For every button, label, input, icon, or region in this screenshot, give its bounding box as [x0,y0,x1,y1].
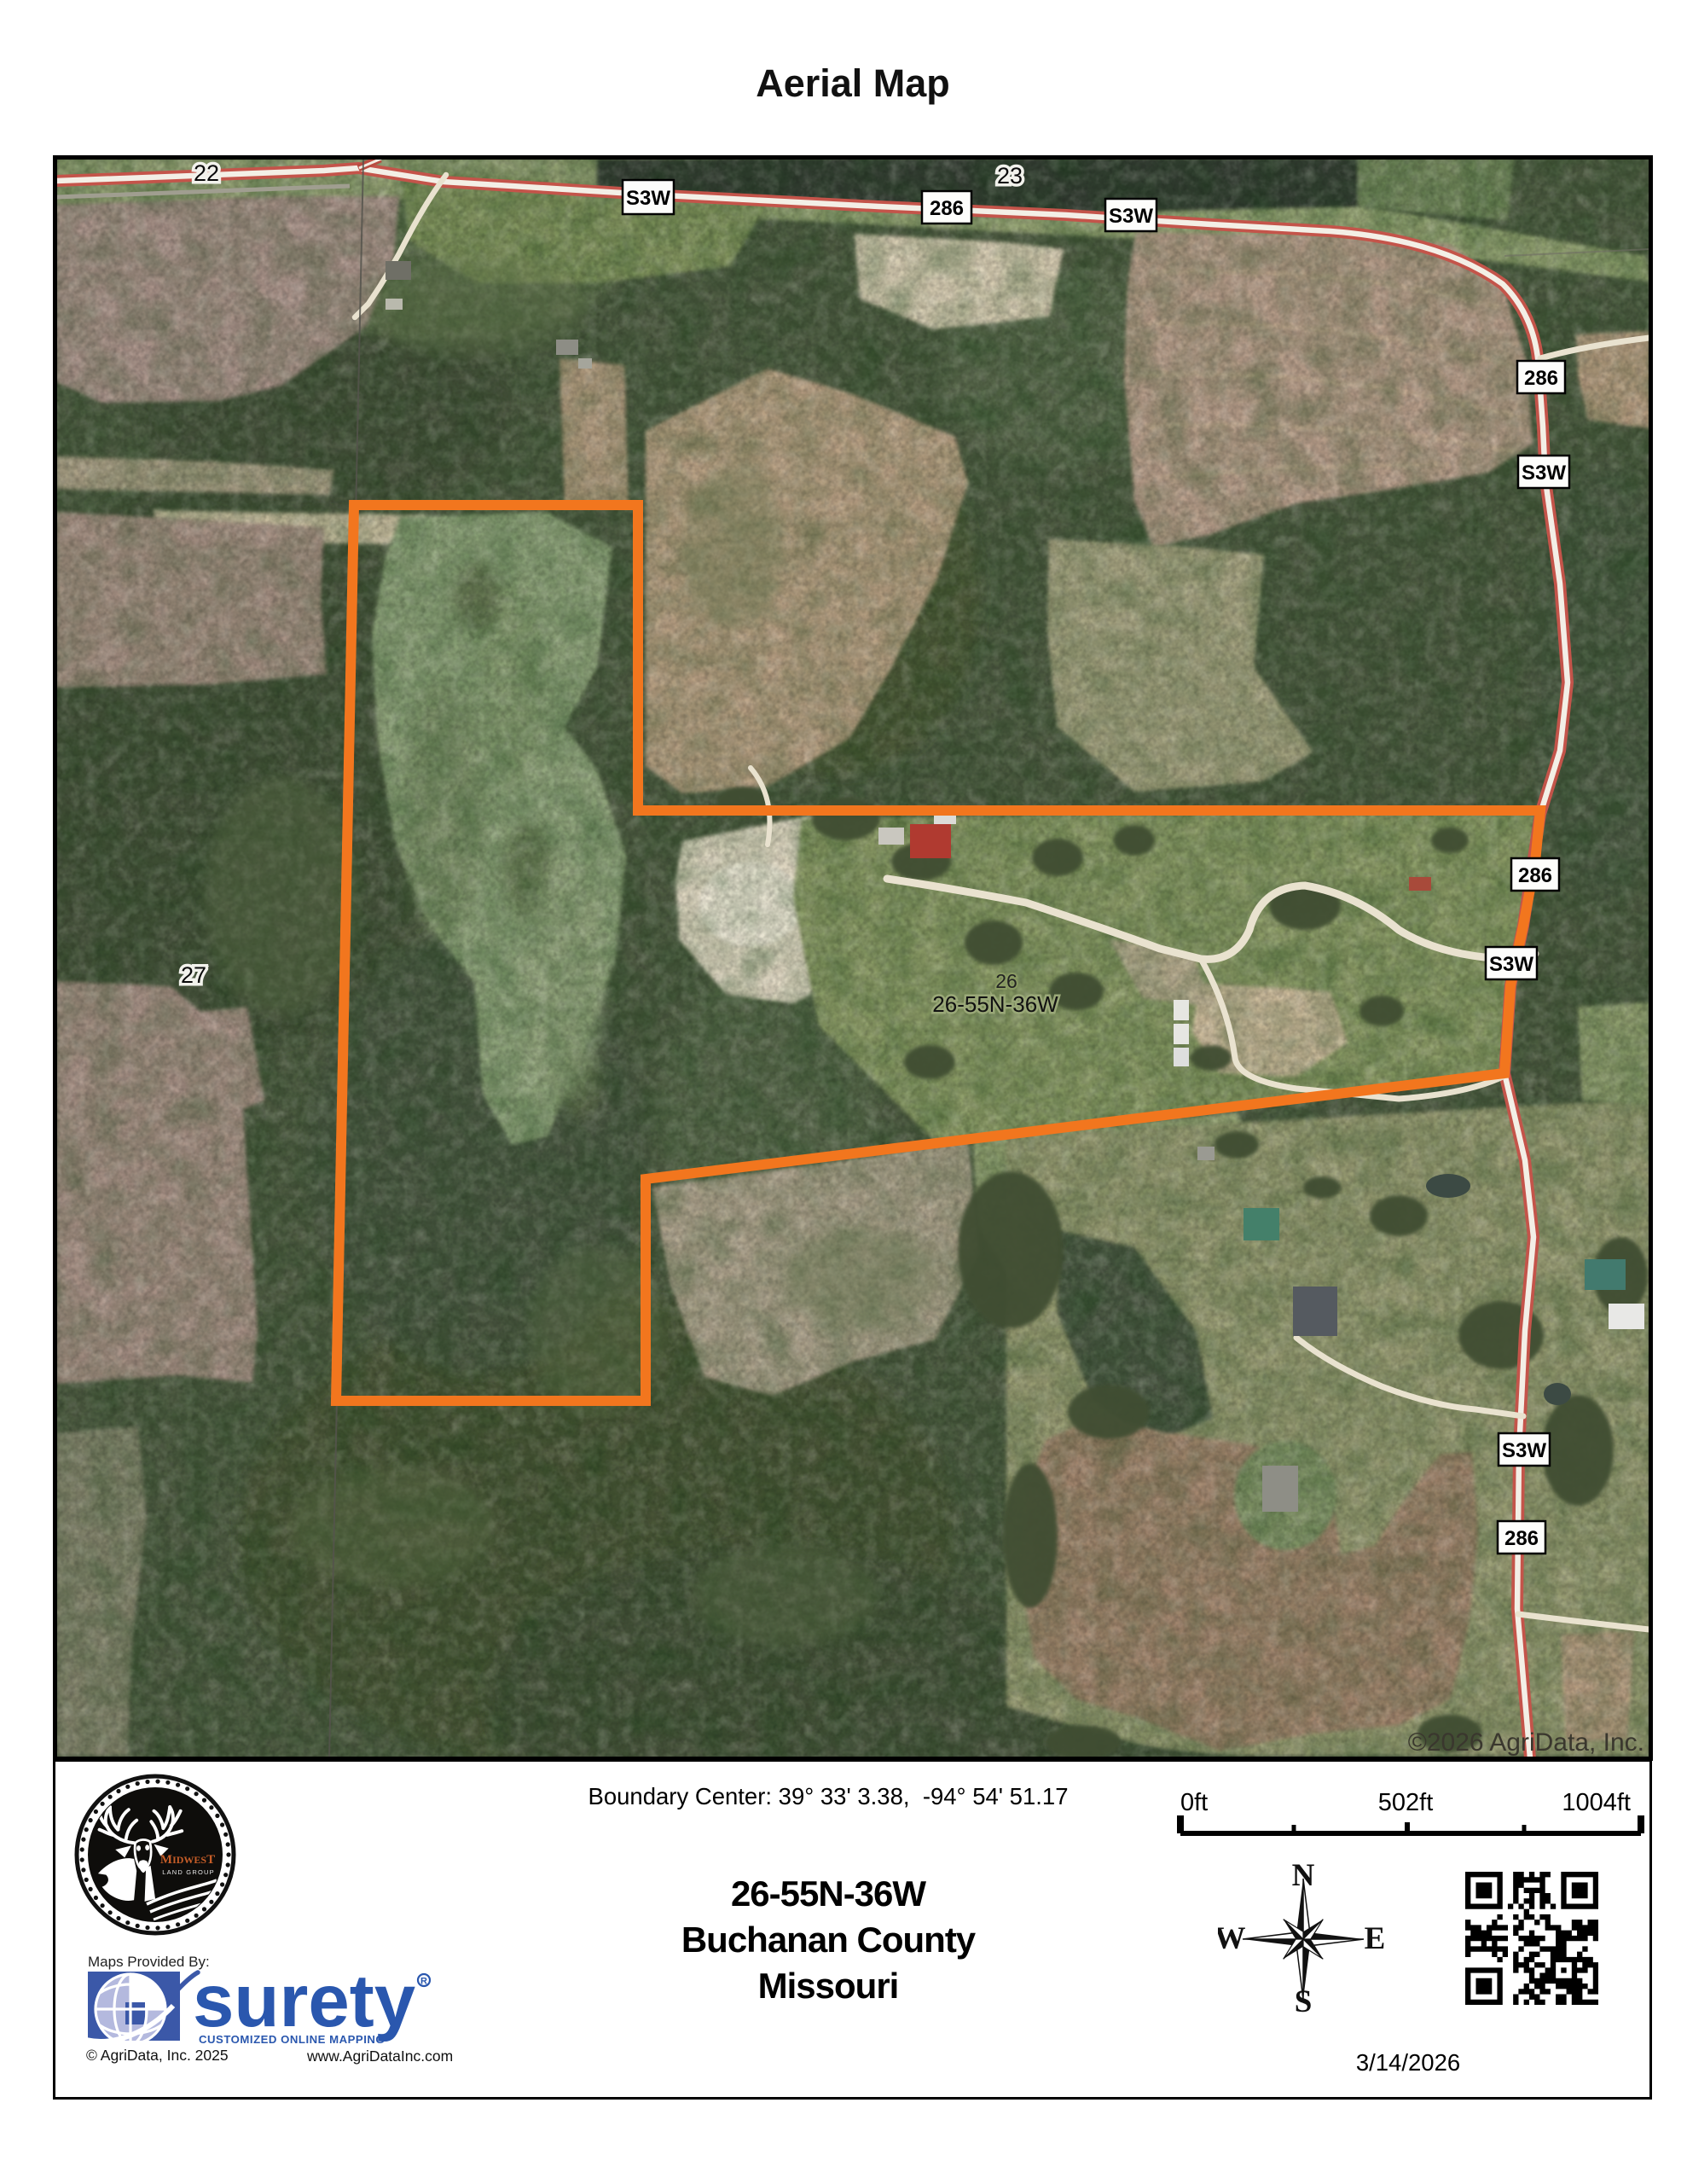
svg-text:E: E [1365,1921,1386,1956]
svg-text:S: S [1295,1984,1313,2019]
svg-text:286: 286 [1504,1527,1539,1550]
svg-text:surety: surety [193,1966,415,2042]
svg-text:W: W [1218,1921,1246,1956]
svg-text:MIDWEST: MIDWEST [160,1853,215,1867]
svg-text:S3W: S3W [1489,953,1533,976]
svg-text:286: 286 [1518,864,1552,887]
svg-text:27: 27 [181,962,206,988]
svg-text:©2026 AgriData, Inc.: ©2026 AgriData, Inc. [1408,1728,1644,1757]
svg-text:26-55N-36W: 26-55N-36W [932,991,1058,1017]
svg-text:286: 286 [1524,367,1558,390]
svg-text:S3W: S3W [1109,205,1153,228]
svg-text:26: 26 [995,970,1017,992]
svg-text:S3W: S3W [626,187,670,210]
svg-text:S3W: S3W [1522,462,1566,485]
svg-text:N: N [1292,1858,1315,1893]
svg-text:CUSTOMIZED ONLINE MAPPING: CUSTOMIZED ONLINE MAPPING [199,2033,385,2046]
svg-text:23: 23 [997,163,1023,189]
svg-text:S3W: S3W [1502,1439,1546,1462]
svg-text:LAND GROUP: LAND GROUP [162,1868,215,1876]
svg-text:R: R [420,1977,427,1987]
svg-text:22: 22 [194,160,219,186]
svg-text:286: 286 [930,197,964,220]
